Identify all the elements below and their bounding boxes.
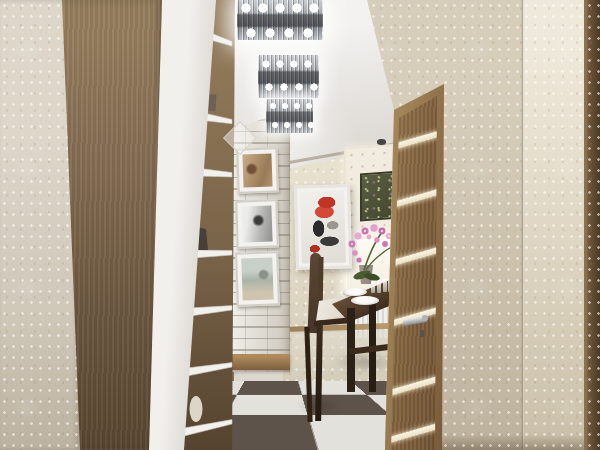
door-glass-strip-5 <box>388 376 440 396</box>
right-edge-wood-trim <box>584 0 600 450</box>
door-glass-strip-6 <box>388 423 440 443</box>
wall-corner-crease <box>521 0 524 450</box>
framed-photo-top-art <box>242 154 272 188</box>
ceiling-light-middle <box>258 55 319 98</box>
shelf-vase <box>190 396 203 422</box>
door-glass-strip-3 <box>388 247 440 267</box>
framed-photo-middle <box>235 199 279 248</box>
table-shadow <box>332 352 396 372</box>
framed-photo-middle-art <box>241 205 272 242</box>
ceiling-spotlight <box>377 139 386 145</box>
ceiling-light-near <box>237 0 323 40</box>
ceiling-light-far <box>266 99 313 133</box>
door-keyhole <box>420 330 424 337</box>
door-handle-rosette <box>422 315 428 321</box>
framed-photo-bottom-art <box>241 257 273 300</box>
hallway-interior-photo <box>0 0 600 450</box>
plate-2 <box>351 296 379 305</box>
framed-photo-top <box>236 147 279 193</box>
plate-1 <box>343 288 367 296</box>
framed-photo-bottom <box>235 251 280 306</box>
